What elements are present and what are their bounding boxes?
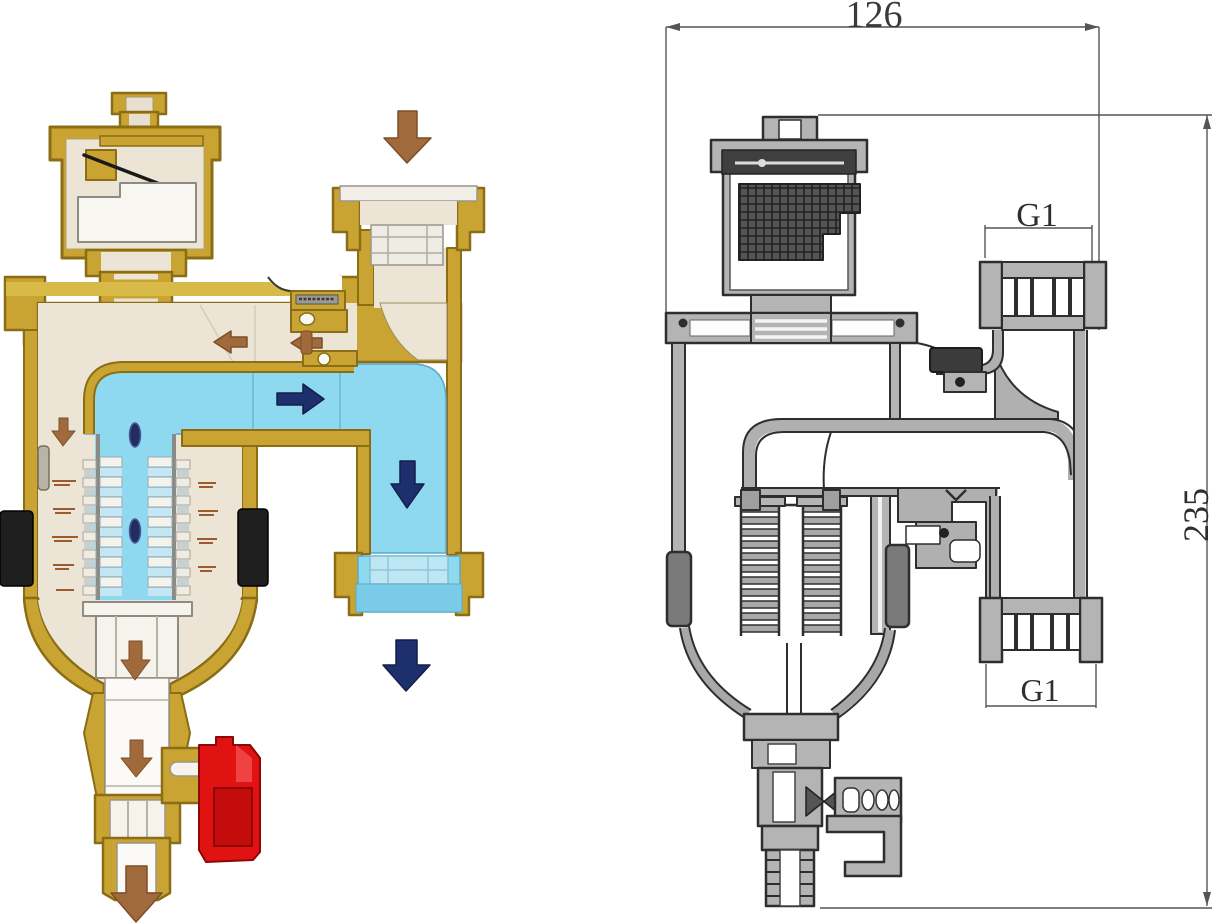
svg-text:126: 126 — [846, 0, 903, 36]
svg-text:G1: G1 — [1016, 197, 1058, 234]
svg-text:G1: G1 — [1020, 672, 1059, 708]
svg-text:235: 235 — [1176, 488, 1214, 542]
